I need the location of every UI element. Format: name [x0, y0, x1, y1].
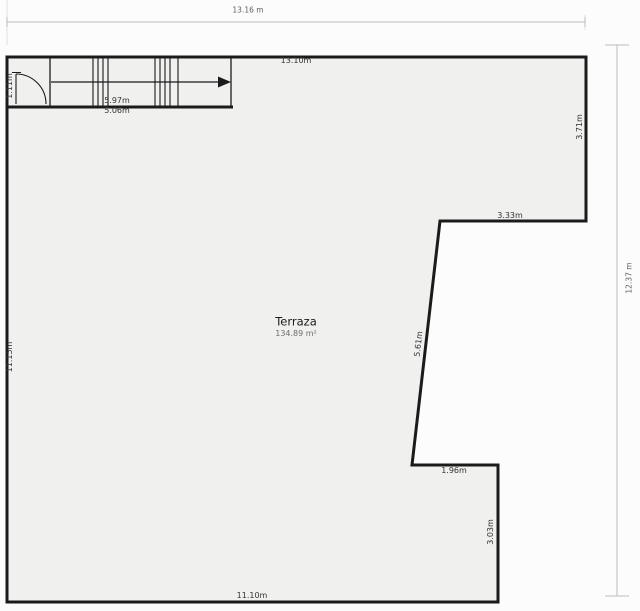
room-name-label: Terraza [275, 316, 317, 328]
right-wall-lower-dimension-label: 3.03m [487, 519, 495, 545]
right-wall-upper-dimension-label: 3.71m [576, 114, 584, 140]
stair-lower-dimension-label: 5.06m [104, 107, 130, 115]
top-dimension-line [7, 0, 585, 45]
overall-height-dimension-label: 12.37 m [625, 262, 633, 293]
door-opening-dimension-label: 1.11m [6, 73, 14, 99]
overall-width-dimension-label: 13.16 m [232, 6, 263, 14]
floor-plan-view: 13.16 m 12.37 m 13.10m 1.11m 5.97m 5.06m… [0, 0, 640, 611]
room-area-label: 134.89 m² [275, 330, 317, 338]
stair-upper-dimension-label: 5.97m [104, 97, 130, 105]
notch-bottom-dimension-label: 1.96m [441, 467, 467, 475]
floor-plan-canvas [0, 0, 640, 611]
left-wall-dimension-label: 11.15m [6, 342, 14, 373]
bottom-wall-dimension-label: 11.10m [237, 592, 268, 600]
notch-top-dimension-label: 3.33m [497, 212, 523, 220]
right-dimension-line [605, 45, 629, 596]
top-wall-dimension-label: 13.10m [281, 57, 312, 65]
